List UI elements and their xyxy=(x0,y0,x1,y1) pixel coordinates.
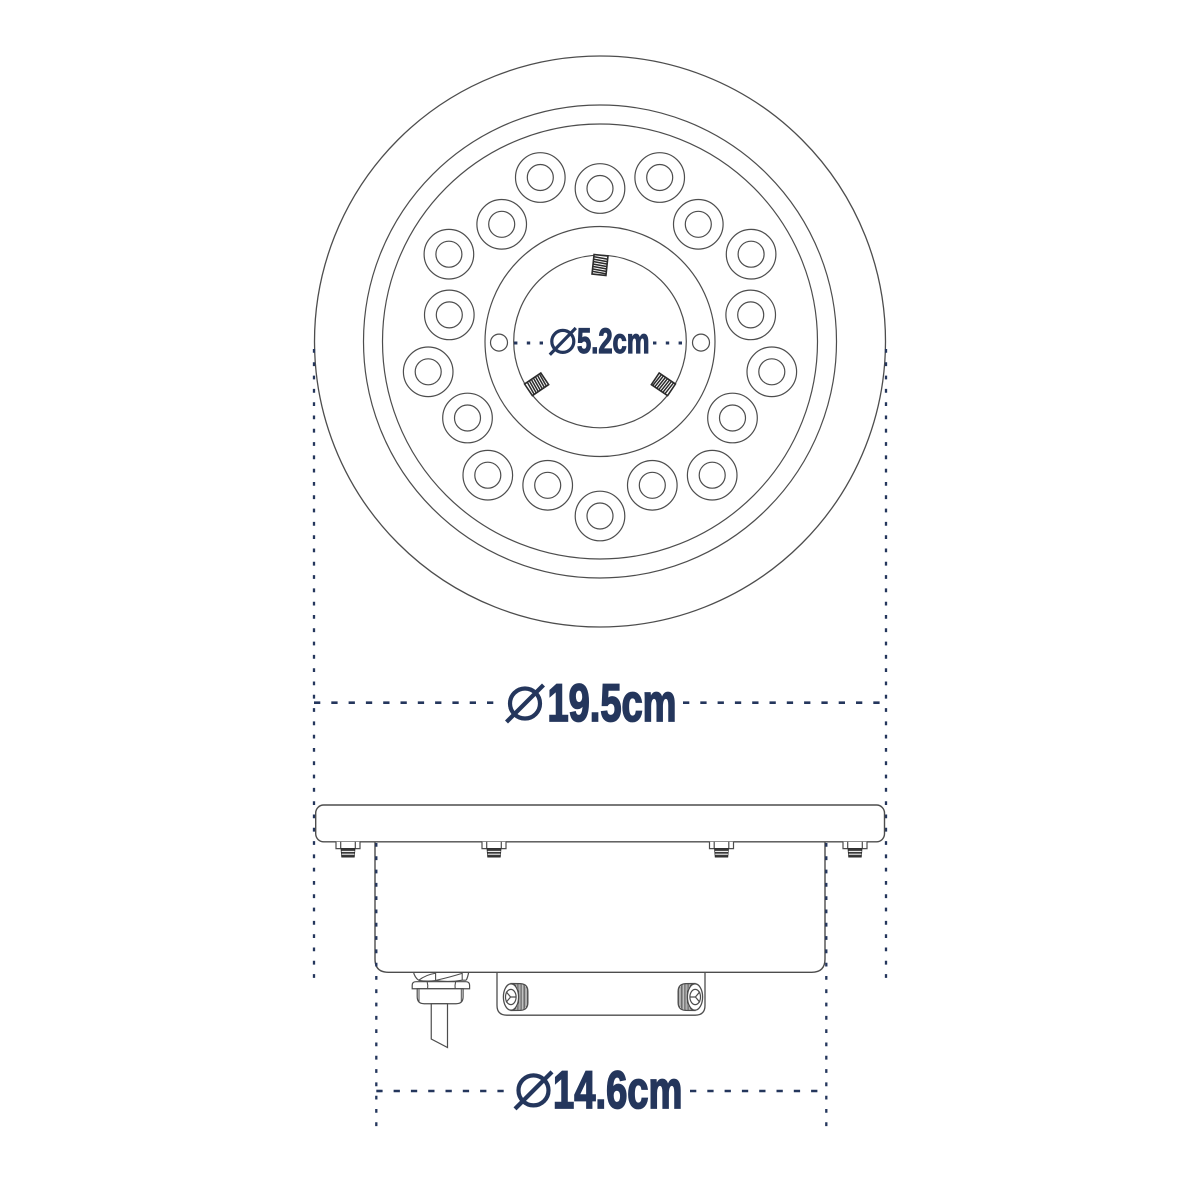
svg-text:5.2cm: 5.2cm xyxy=(577,322,650,361)
svg-text:19.5cm: 19.5cm xyxy=(548,674,677,733)
svg-text:14.6cm: 14.6cm xyxy=(553,1061,683,1120)
